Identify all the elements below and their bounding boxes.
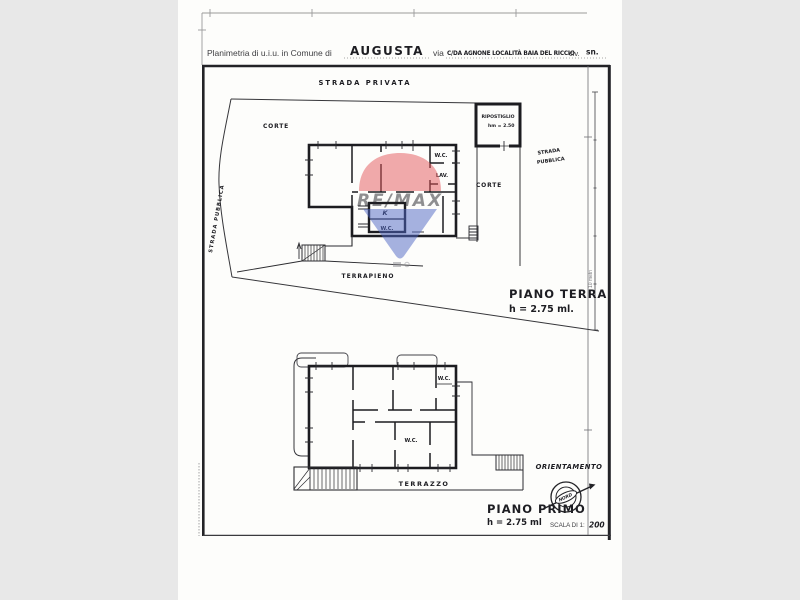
strada-privata-label: STRADA PRIVATA: [319, 79, 412, 87]
corte-right-label: CORTE: [476, 182, 502, 189]
piano-terra-height: h = 2.75 ml.: [509, 304, 574, 315]
piano-terra-title: PIANO TERRA: [509, 287, 607, 301]
wc-ground-upper-label: W.C.: [434, 153, 447, 159]
ripostiglio-label: RIPOSTIGLIO: [482, 114, 515, 120]
piano-primo-title: PIANO PRIMO: [487, 502, 586, 516]
wc-first-upper-label: W.C.: [438, 376, 451, 382]
terrapieno-label: TERRAPIENO: [342, 273, 395, 280]
header-comune-value: AUGUSTA: [350, 44, 424, 58]
watermark-basket: [393, 262, 401, 267]
header-civ-label: civ.: [569, 49, 580, 58]
header-prefix-label: Planimetria di u.i.u. in Comune di: [207, 48, 332, 58]
ripostiglio-height-label: hm = 2.50: [488, 123, 514, 129]
piano-primo-height: h = 2.75 ml: [487, 518, 542, 528]
header-via-label: via: [433, 48, 444, 58]
header-via-value: C/DA AGNONE LOCALITÀ BAIA DEL RICCIO: [447, 50, 575, 57]
orientamento-label: ORIENTAMENTO: [536, 463, 603, 471]
floorplan-drawing: Planimetria di u.i.u. in Comune di AUGUS…: [0, 0, 800, 600]
header-civ-value: sn.: [586, 48, 599, 57]
scanned-floorplan-page: Planimetria di u.i.u. in Comune di AUGUS…: [0, 0, 800, 600]
wc-first-lower-label: W.C.: [404, 438, 417, 444]
scala-label: SCALA DI 1:: [550, 522, 585, 529]
watermark-brand-text: RE/MAX: [357, 191, 443, 211]
scale-bar-label: 10 metri: [588, 270, 594, 288]
scala-value: 200: [589, 521, 605, 530]
terrazzo-label: TERRAZZO: [399, 480, 450, 488]
corte-top-label: CORTE: [263, 123, 289, 130]
